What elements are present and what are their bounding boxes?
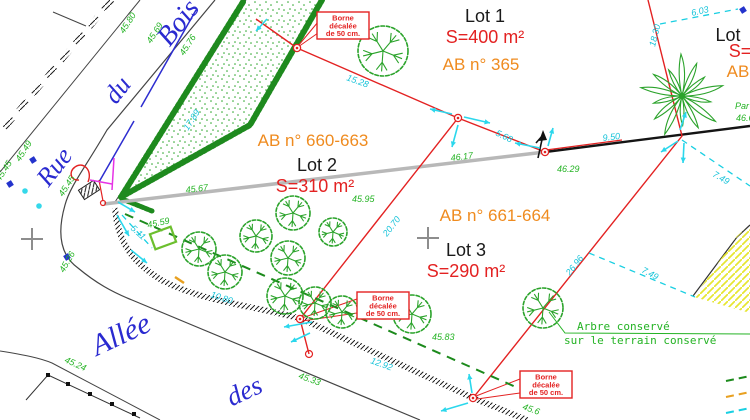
grid-cross: [21, 228, 43, 250]
elevation-label: 46.29: [557, 164, 580, 174]
dimension-label: 6.03: [690, 4, 709, 18]
parcel-number-label: AB n° 365: [443, 55, 520, 74]
blue-point-marker: [739, 6, 747, 14]
cadastral-plan-drawing: RueduBoisAlléedesLot 1S=400 m²AB n° 365L…: [0, 0, 750, 420]
fence-line: [26, 375, 140, 418]
dimension-label: 9.50: [602, 131, 621, 143]
dimension-label: 5.68: [494, 128, 514, 145]
flow-arrow-icon: [467, 374, 472, 393]
lot-name-label: Lot 2: [297, 155, 337, 175]
grid-cross: [417, 227, 439, 249]
dimension-label: 15.28: [345, 72, 370, 89]
flow-arrow-icon: [661, 141, 678, 152]
parcel-number-label: AB n° 661-664: [440, 206, 551, 225]
lot-name-label: Lot 3: [446, 240, 486, 260]
blue-point-marker: [6, 180, 14, 188]
survey-marker: [541, 148, 548, 155]
yellow-hatched-area: [694, 225, 750, 313]
elevation-label: 45.26: [57, 249, 77, 274]
borne-decalee-callout: Bornedécaléede 50 cm.: [520, 371, 572, 398]
site-plan-canvas: RueduBoisAlléedesLot 1S=400 m²AB n° 365L…: [0, 0, 750, 420]
tree-note-line1: Arbre conservé: [577, 320, 670, 333]
elevation-label: 45.33: [297, 370, 322, 387]
culvert-symbol: [78, 180, 99, 199]
street-name-label: des: [222, 370, 267, 412]
street-name-label: du: [98, 71, 137, 109]
survey-marker: [296, 315, 303, 322]
lot-name-label: Lot 1: [465, 6, 505, 26]
elevation-label: 45.24: [63, 355, 88, 373]
flow-arrow-icon: [681, 143, 686, 163]
survey-marker: [469, 394, 476, 401]
tree-symbol: [182, 232, 216, 266]
flow-arrow-icon: [464, 117, 490, 124]
blue-point-marker: [29, 156, 37, 164]
edge-legend-dashes: [726, 376, 750, 413]
elevation-label: 45.80: [117, 11, 138, 35]
elevation-label: Par: [735, 101, 750, 111]
dimension-label: 20.70: [380, 214, 402, 239]
elevation-label: 45.83: [432, 332, 455, 342]
flow-arrow-icon: [548, 128, 554, 146]
dimension-label: 18.30: [647, 23, 662, 47]
cyan-point-marker: [22, 188, 28, 194]
flow-arrow-icon: [451, 125, 458, 147]
borne-callout-text: de 50 cm.: [529, 388, 563, 397]
street-name-label: Allée: [84, 306, 156, 363]
elevation-label: 45.95: [352, 194, 376, 204]
flow-arrow-icon: [441, 403, 468, 412]
elevation-label: 45.6: [521, 401, 541, 416]
lot-area-label: S=290 m²: [427, 261, 506, 281]
parcel-number-label: AB: [727, 62, 750, 81]
tree-symbol: [319, 218, 347, 246]
utility-box-symbol: [150, 227, 176, 250]
flow-arrow-icon: [291, 333, 310, 342]
borne-callout-text: de 50 cm.: [366, 309, 400, 318]
orange-tick: [175, 277, 184, 283]
tree-symbol: [267, 278, 303, 314]
tree-symbol: [326, 296, 358, 328]
cyan-point-marker: [36, 203, 42, 209]
borne-callout-text: de 50 cm.: [326, 29, 360, 38]
dimension-label: 7.49: [640, 265, 660, 282]
borne-decalee-callout: Bornedécaléede 50 cm.: [317, 12, 369, 39]
dimension-label: 5.11: [129, 223, 148, 242]
tree-symbol: [208, 255, 242, 289]
tree-symbol: [271, 241, 305, 275]
elevation-label: 45.45: [0, 158, 14, 183]
black-boundary-line: [545, 126, 750, 152]
tree-symbol: [240, 220, 272, 252]
parcel-number-label: AB n° 660-663: [258, 131, 369, 150]
elevation-label: 46.6: [736, 113, 750, 123]
lot-area-label: S=310 m²: [276, 176, 355, 196]
dimension-label: 26.96: [563, 253, 585, 278]
tree-note-line2: sur le terrain conservé: [564, 334, 716, 347]
borne-decalee-callout: Bornedécaléede 50 cm.: [357, 292, 409, 319]
flow-arrow-icon: [430, 108, 452, 114]
lot-area-label: S=: [729, 41, 750, 61]
tree-symbol: [276, 196, 310, 230]
survey-marker: [454, 114, 461, 121]
flow-arrow-icon: [284, 322, 312, 329]
survey-marker: [293, 44, 300, 51]
lot-area-label: S=400 m²: [446, 27, 525, 47]
